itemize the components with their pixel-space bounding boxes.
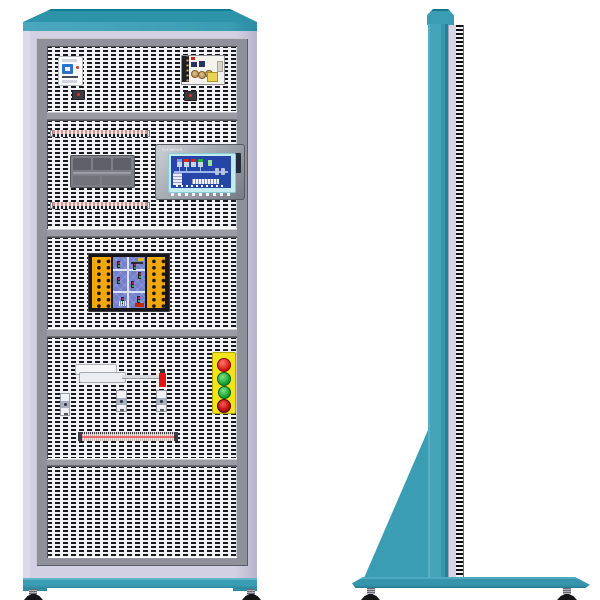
terminal-strip-endcap bbox=[147, 202, 150, 209]
plc-terminal-cover bbox=[113, 158, 131, 170]
board-red-label bbox=[135, 303, 144, 307]
signal-wire bbox=[122, 375, 162, 379]
tank-fill bbox=[184, 159, 189, 162]
fuse-indicator bbox=[189, 94, 192, 97]
terminal-strip-endcap bbox=[174, 432, 178, 441]
illustration-canvas: SIEMENS bbox=[0, 0, 600, 600]
terminal-strip-teeth bbox=[53, 134, 147, 137]
side-panel-edge bbox=[448, 25, 456, 578]
hmi-brand-label: SIEMENS bbox=[162, 147, 183, 152]
green-indicator-button bbox=[218, 386, 231, 399]
foot-stem bbox=[563, 588, 571, 594]
leveling-foot-right bbox=[242, 594, 261, 600]
plc-terminal-cover bbox=[73, 158, 91, 170]
side-support-gusset bbox=[364, 430, 428, 578]
plc-lower-block bbox=[73, 176, 100, 185]
cabinet-cap-top bbox=[23, 9, 257, 22]
green-indicator-button bbox=[217, 372, 231, 386]
side-foot-front bbox=[361, 594, 380, 600]
limit-switch-3 bbox=[156, 390, 167, 412]
crosswalk-stripes bbox=[119, 301, 127, 306]
cabinet-cap-band bbox=[23, 22, 257, 31]
emergency-stop-button bbox=[217, 399, 231, 413]
terminal-strip-teeth bbox=[53, 206, 147, 209]
terminal-strip-long bbox=[78, 432, 178, 441]
road-line bbox=[127, 257, 129, 308]
leveling-foot-left bbox=[24, 594, 43, 600]
mimic-cylinder bbox=[215, 168, 219, 175]
toggle-window bbox=[65, 67, 70, 71]
hmi-function-keys bbox=[171, 193, 233, 196]
limit-switch-2 bbox=[116, 390, 127, 412]
board-terminal-strip-right bbox=[147, 257, 165, 308]
plc-groove bbox=[73, 172, 131, 174]
board-pcb bbox=[113, 257, 145, 308]
mimic-tank bbox=[198, 159, 203, 167]
terminal-strip-endcap bbox=[147, 130, 150, 137]
fuse-block bbox=[184, 91, 197, 101]
breaker-indicator-dot bbox=[76, 66, 79, 69]
switch-dot bbox=[160, 400, 163, 403]
fuse-body bbox=[159, 373, 166, 387]
mimic-tank-small bbox=[208, 160, 212, 166]
mimic-pipe-main bbox=[174, 171, 228, 173]
red-indicator-button bbox=[217, 358, 231, 372]
mimic-cylinder bbox=[221, 168, 225, 175]
switch-dot bbox=[120, 400, 123, 403]
traffic-light bbox=[117, 261, 120, 268]
red-indicator-fuse bbox=[159, 369, 166, 387]
terminal-strip-endcap bbox=[50, 130, 53, 137]
switching-power-supply bbox=[181, 55, 225, 85]
relay-socket-lower bbox=[79, 372, 126, 383]
base-bar bbox=[23, 578, 257, 588]
divider-bar bbox=[47, 459, 237, 466]
breaker-toggle bbox=[62, 64, 73, 74]
plc-lower-block bbox=[102, 176, 131, 185]
terminal-strip-lower bbox=[50, 202, 150, 209]
side-cap bbox=[427, 9, 454, 25]
mimic-button-bar bbox=[192, 179, 219, 184]
traffic-light bbox=[133, 263, 136, 270]
hmi-screen bbox=[171, 156, 231, 188]
switch-dot bbox=[64, 403, 67, 406]
fuse-indicator bbox=[77, 93, 80, 96]
tank-fill bbox=[191, 159, 196, 162]
foot-stem bbox=[367, 588, 375, 594]
mimic-data-table bbox=[173, 173, 182, 185]
switch-tick bbox=[64, 413, 68, 415]
switch-tick bbox=[160, 409, 164, 411]
miniature-circuit-breaker bbox=[58, 56, 83, 86]
side-column bbox=[428, 24, 448, 578]
switch-tick bbox=[120, 409, 124, 411]
plc-module bbox=[70, 155, 135, 188]
breaker-terminal-top bbox=[62, 59, 77, 62]
pushbutton-panel bbox=[212, 352, 236, 414]
traffic-light bbox=[117, 277, 120, 284]
side-base-plate bbox=[352, 577, 590, 588]
terminal-strip-endcap bbox=[50, 202, 53, 209]
mimic-tank bbox=[191, 159, 196, 167]
mimic-button-row bbox=[176, 185, 226, 187]
divider-bar bbox=[47, 112, 237, 120]
breaker-label-band bbox=[62, 76, 78, 78]
psu-terminal-strip bbox=[182, 56, 189, 82]
side-hinge-strip bbox=[456, 25, 464, 578]
divider-bar bbox=[47, 329, 237, 337]
traffic-light bbox=[131, 281, 134, 288]
psu-component bbox=[217, 61, 223, 72]
limit-switch-1 bbox=[60, 393, 70, 416]
traffic-light bbox=[137, 296, 140, 303]
tank-fill bbox=[177, 159, 182, 162]
traffic-light bbox=[138, 272, 141, 279]
terminal-strip-upper bbox=[50, 130, 150, 137]
breaker-terminal-bottom bbox=[62, 80, 77, 83]
mesh-panel-empty bbox=[47, 466, 237, 558]
divider-bar bbox=[47, 229, 237, 237]
psu-red-label bbox=[191, 57, 195, 60]
plc-terminal-cover bbox=[93, 158, 111, 170]
mimic-tank bbox=[177, 159, 182, 167]
psu-transformer bbox=[207, 72, 218, 82]
board-terminal-strip-left bbox=[92, 257, 111, 308]
side-foot-rear bbox=[557, 594, 577, 600]
road-line bbox=[113, 291, 145, 293]
mimic-tank bbox=[184, 159, 189, 167]
psu-component bbox=[191, 62, 197, 67]
psu-component bbox=[199, 61, 205, 67]
traffic-light-trainer-board bbox=[88, 253, 170, 312]
fuse-block bbox=[72, 90, 85, 100]
pcb-chip bbox=[138, 258, 144, 261]
terminal-strip-rail bbox=[82, 436, 174, 438]
hmi-touch-panel: SIEMENS bbox=[155, 144, 245, 200]
road-line bbox=[113, 269, 145, 271]
tank-fill bbox=[198, 159, 203, 162]
